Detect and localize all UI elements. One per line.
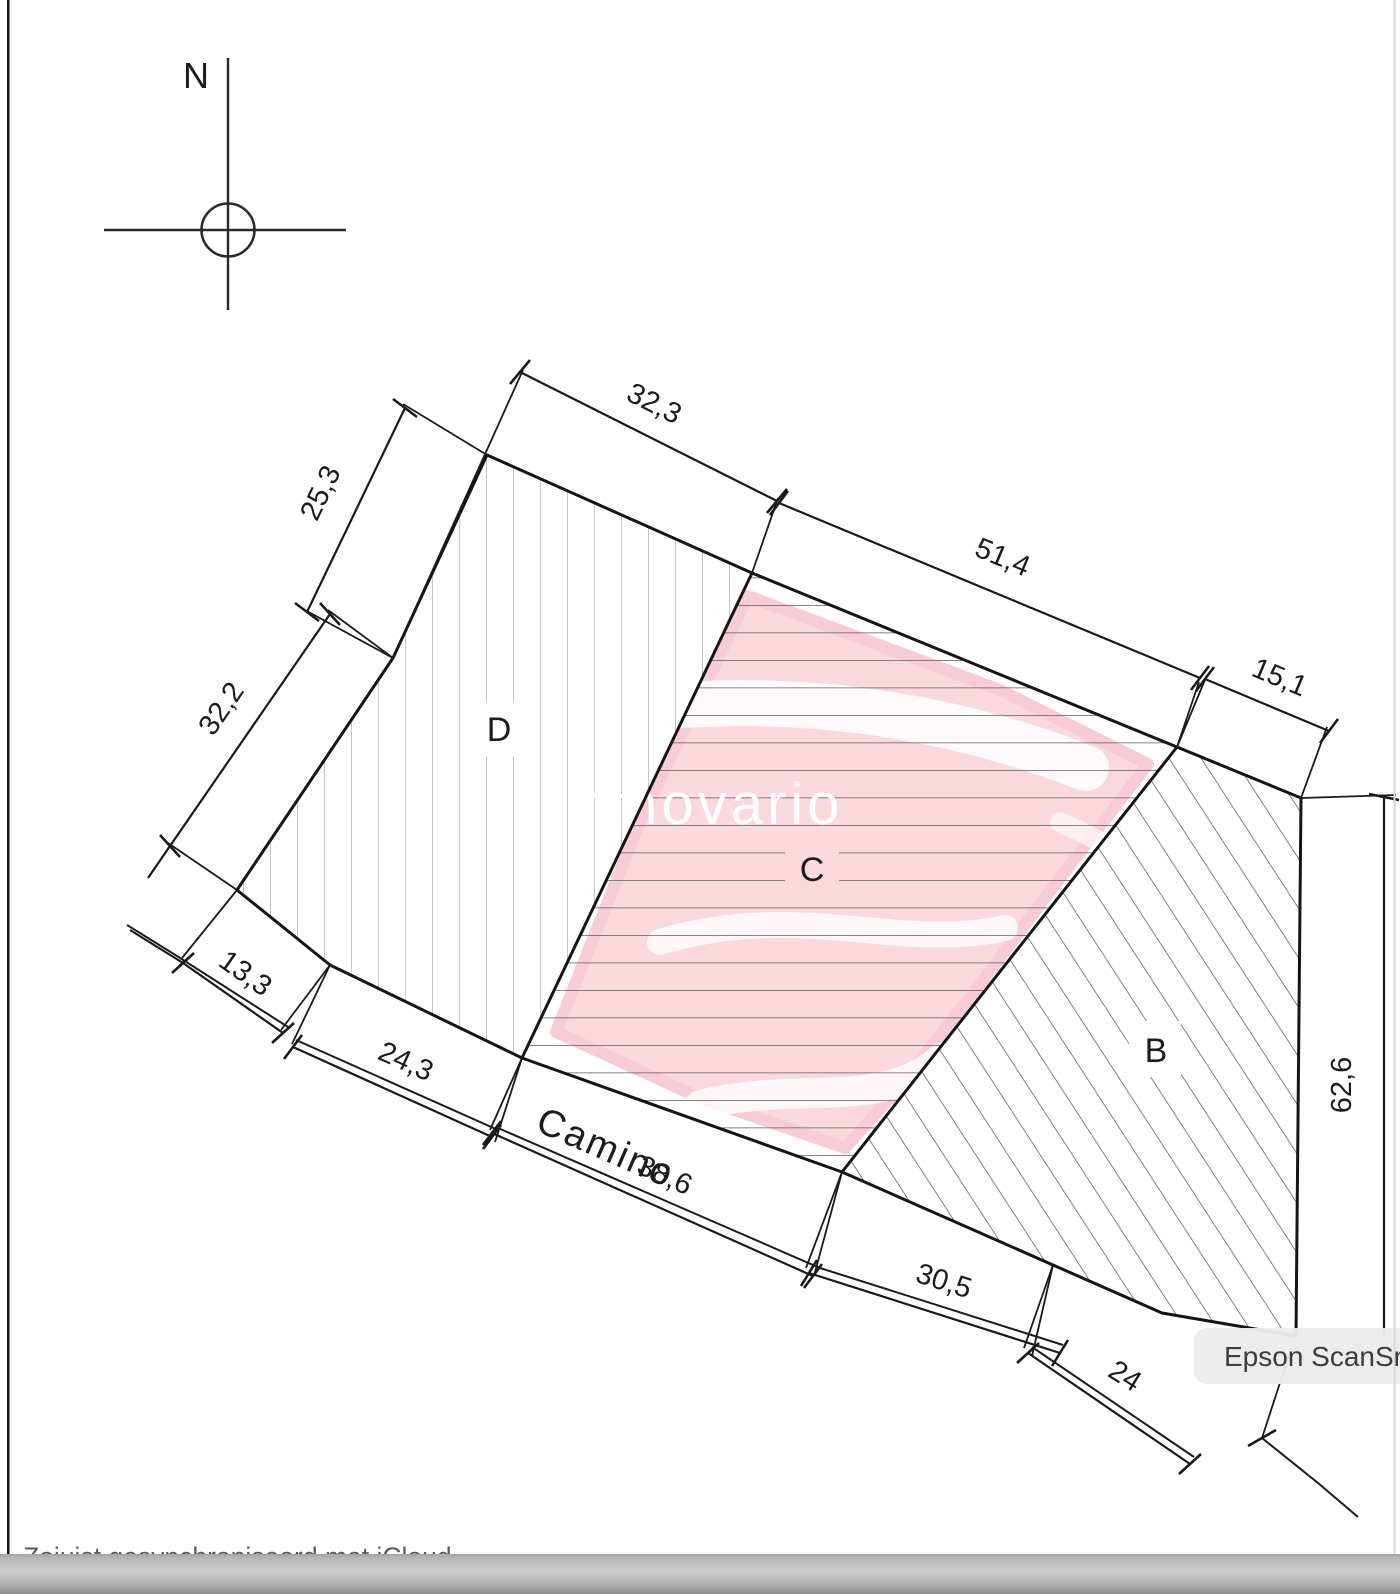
bottom-toolbar-bar xyxy=(0,1554,1400,1594)
dim-label-62-6: 62,6 xyxy=(1326,1057,1358,1113)
north-label: N xyxy=(183,55,209,96)
parcel-c-label: C xyxy=(800,851,825,889)
watermark-text: inmovario xyxy=(556,772,843,837)
survey-drawing-canvas: inmovario xyxy=(0,0,1400,1594)
left-page-border xyxy=(7,0,10,1554)
epson-scansmart-overlay[interactable]: Epson ScanSmart xyxy=(1194,1328,1400,1384)
parcel-d-label: D xyxy=(487,711,512,749)
scanned-plot-plan-page: inmovario xyxy=(0,0,1400,1594)
right-edge-scroll-line[interactable] xyxy=(1394,0,1396,1554)
overlay-app-label: Epson ScanSmart xyxy=(1224,1341,1400,1372)
parcel-b-label: B xyxy=(1145,1032,1168,1070)
